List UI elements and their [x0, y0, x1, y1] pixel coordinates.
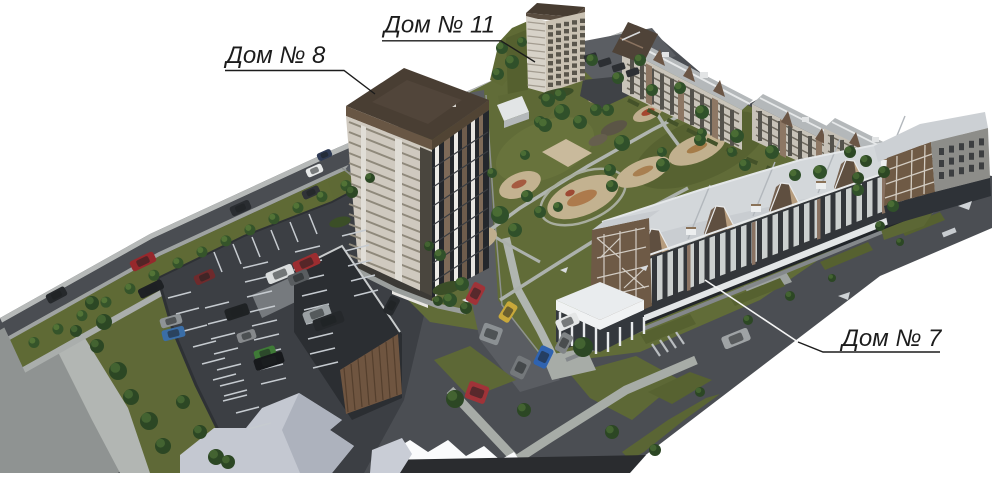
svg-text:Дом № 8: Дом № 8: [223, 42, 326, 69]
svg-text:Дом № 7: Дом № 7: [839, 325, 943, 352]
svg-text:Дом № 11: Дом № 11: [381, 12, 495, 39]
